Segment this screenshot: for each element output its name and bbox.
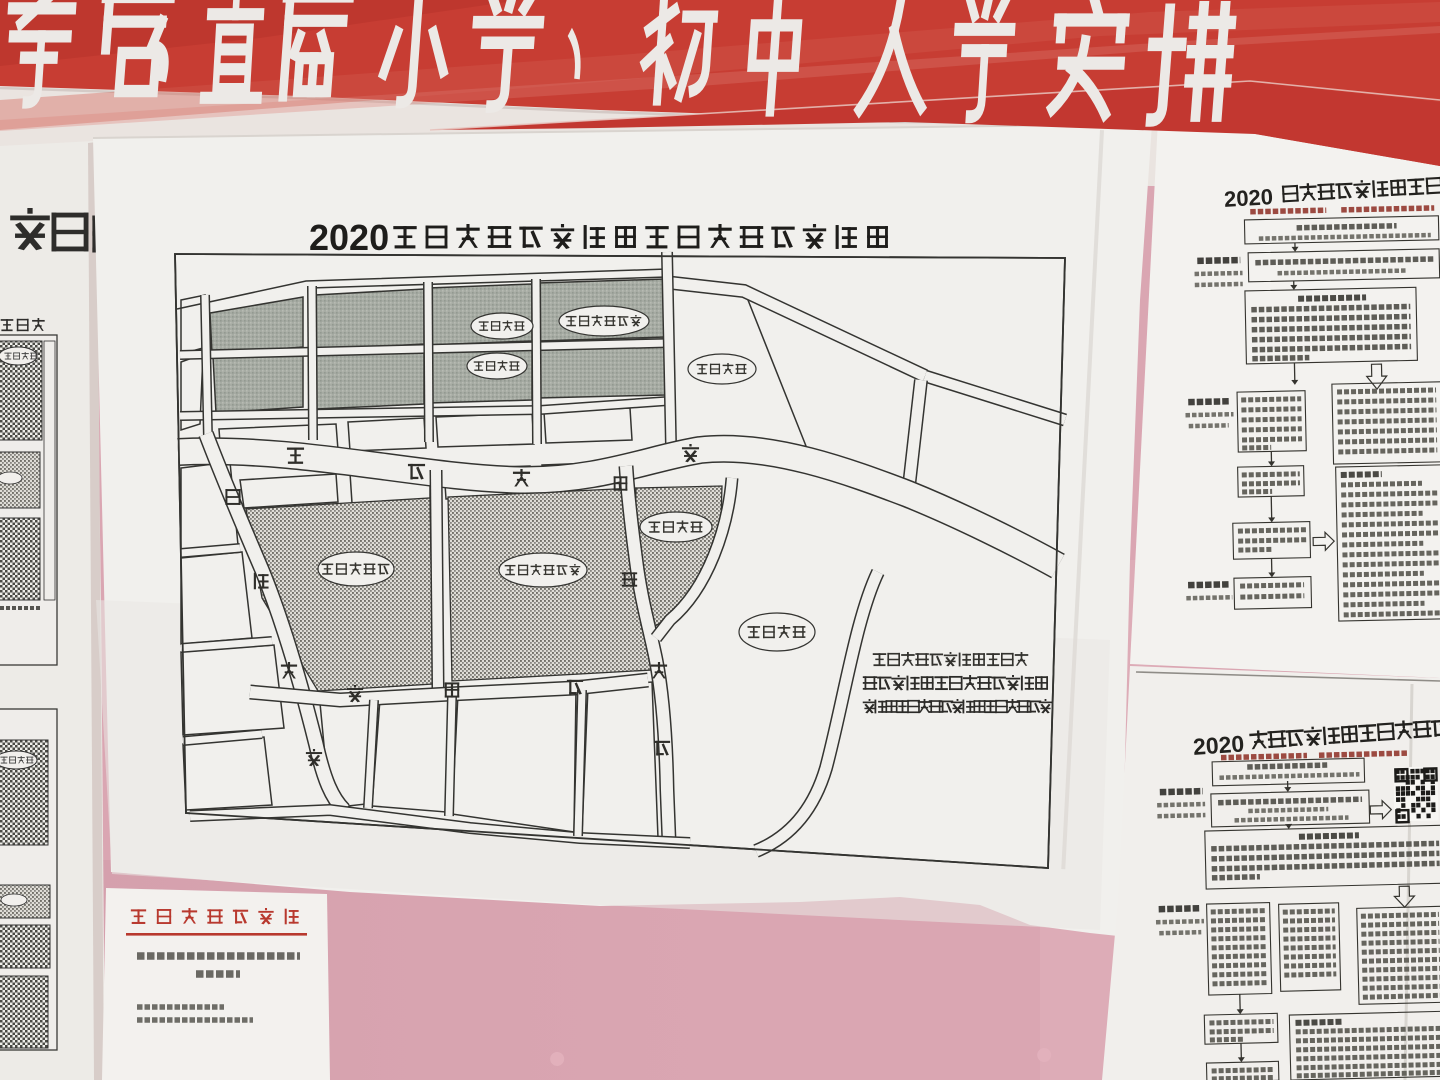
svg-text:2020: 2020: [1223, 184, 1273, 212]
svg-text:2020: 2020: [309, 217, 389, 258]
